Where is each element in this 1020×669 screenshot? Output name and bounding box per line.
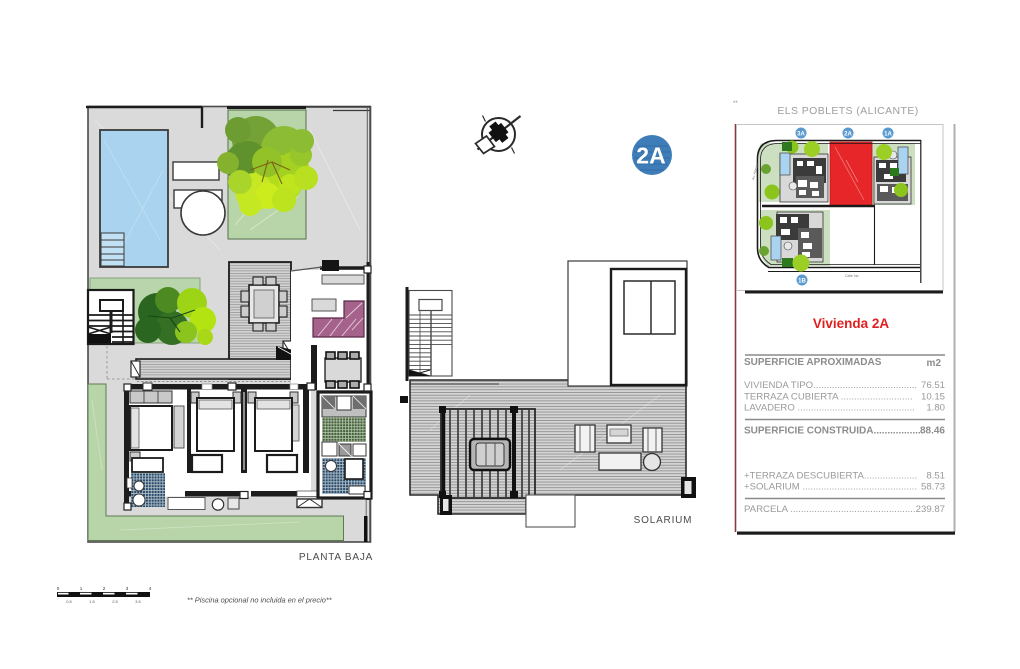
svg-text:PLANTA BAJA: PLANTA BAJA bbox=[299, 552, 373, 563]
svg-text:TERRAZA CUBIERTA .............: TERRAZA CUBIERTA .......................… bbox=[744, 392, 913, 403]
svg-text:4: 4 bbox=[149, 586, 152, 591]
svg-text:1.5: 1.5 bbox=[89, 599, 95, 604]
svg-text:2A: 2A bbox=[844, 132, 852, 138]
svg-text:10.15: 10.15 bbox=[921, 392, 945, 403]
svg-text:3A: 3A bbox=[797, 132, 805, 138]
svg-text:+TERRAZA DESCUBIERTA..........: +TERRAZA DESCUBIERTA.................... bbox=[744, 471, 917, 482]
svg-text:1B: 1B bbox=[798, 279, 806, 285]
svg-text:SUPERFICIE APROXIMADAS: SUPERFICIE APROXIMADAS bbox=[744, 357, 882, 368]
svg-text:2.5: 2.5 bbox=[112, 599, 118, 604]
svg-text:VIVIENDA TIPO.................: VIVIENDA TIPO...........................… bbox=[744, 380, 917, 391]
svg-text:2A: 2A bbox=[636, 143, 665, 169]
svg-text:SUPERFICIE CONSTRUIDA.........: SUPERFICIE CONSTRUIDA.................. bbox=[744, 426, 924, 437]
svg-text:3.5: 3.5 bbox=[135, 599, 141, 604]
svg-text:1: 1 bbox=[80, 586, 83, 591]
svg-text:1.80: 1.80 bbox=[926, 403, 945, 414]
svg-text:Vivienda 2A: Vivienda 2A bbox=[813, 316, 890, 331]
svg-text:239.87: 239.87 bbox=[916, 504, 945, 515]
svg-text:ELS POBLETS (ALICANTE): ELS POBLETS (ALICANTE) bbox=[777, 105, 918, 117]
svg-text:88.46: 88.46 bbox=[920, 426, 945, 437]
svg-text:3: 3 bbox=[126, 586, 129, 591]
svg-text:8.51: 8.51 bbox=[926, 471, 945, 482]
svg-text:PARCELA ......................: PARCELA ................................… bbox=[744, 504, 916, 515]
svg-text:0.5: 0.5 bbox=[66, 599, 72, 604]
svg-text:LAVADERO .....................: LAVADERO ...............................… bbox=[744, 403, 915, 414]
svg-text:m2: m2 bbox=[927, 358, 942, 369]
svg-text:** Piscina opcional no incluid: ** Piscina opcional no incluida en el pr… bbox=[187, 596, 333, 605]
svg-text:2: 2 bbox=[103, 586, 106, 591]
svg-text:+SOLARIUM ....................: +SOLARIUM ..............................… bbox=[744, 482, 917, 493]
svg-text:1A: 1A bbox=[884, 132, 892, 138]
svg-text:Calle Na: Calle Na bbox=[845, 274, 858, 278]
svg-text:58.73: 58.73 bbox=[921, 482, 945, 493]
svg-text:SOLARIUM: SOLARIUM bbox=[634, 515, 693, 526]
svg-text:0: 0 bbox=[57, 586, 60, 591]
svg-text:76.51: 76.51 bbox=[921, 380, 945, 391]
svg-text:**: ** bbox=[733, 101, 738, 107]
